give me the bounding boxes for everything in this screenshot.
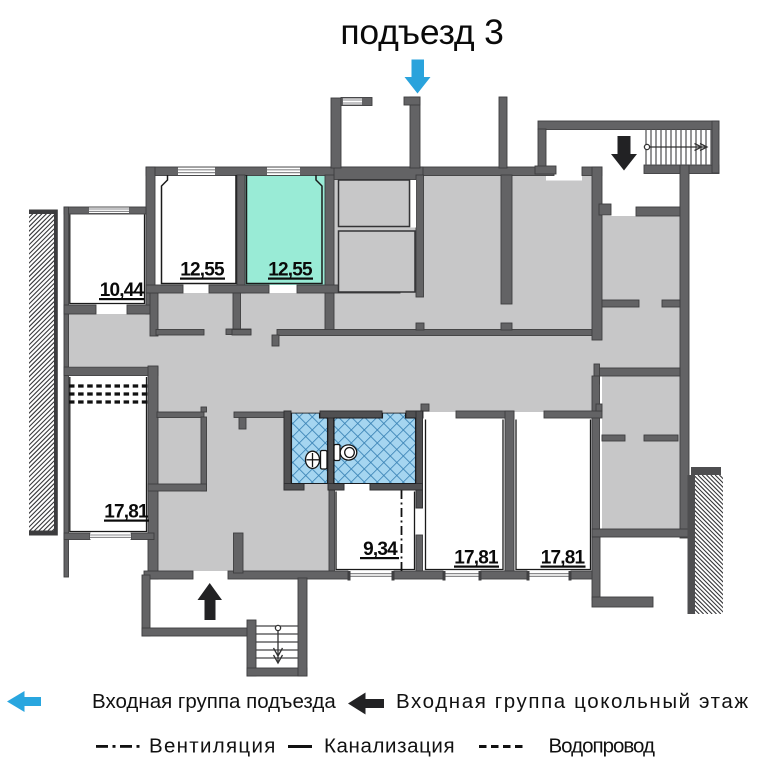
svg-text:12,55: 12,55	[180, 260, 225, 281]
svg-text:Вентиляция: Вентиляция	[149, 735, 277, 758]
svg-text:Входная группа подъезда: Входная группа подъезда	[92, 690, 336, 713]
svg-text:Водопровод: Водопровод	[549, 735, 656, 758]
svg-text:17,81: 17,81	[104, 502, 149, 523]
svg-text:10,44: 10,44	[100, 280, 145, 301]
svg-text:9,34: 9,34	[363, 539, 398, 560]
svg-text:Канализация: Канализация	[324, 735, 455, 758]
svg-text:17,81: 17,81	[454, 548, 499, 569]
svg-text:Входная группа цокольный этаж: Входная группа цокольный этаж	[396, 690, 750, 713]
svg-text:12,55: 12,55	[268, 260, 313, 281]
svg-text:17,81: 17,81	[541, 548, 586, 569]
svg-text:подъезд 3: подъезд 3	[340, 12, 503, 52]
